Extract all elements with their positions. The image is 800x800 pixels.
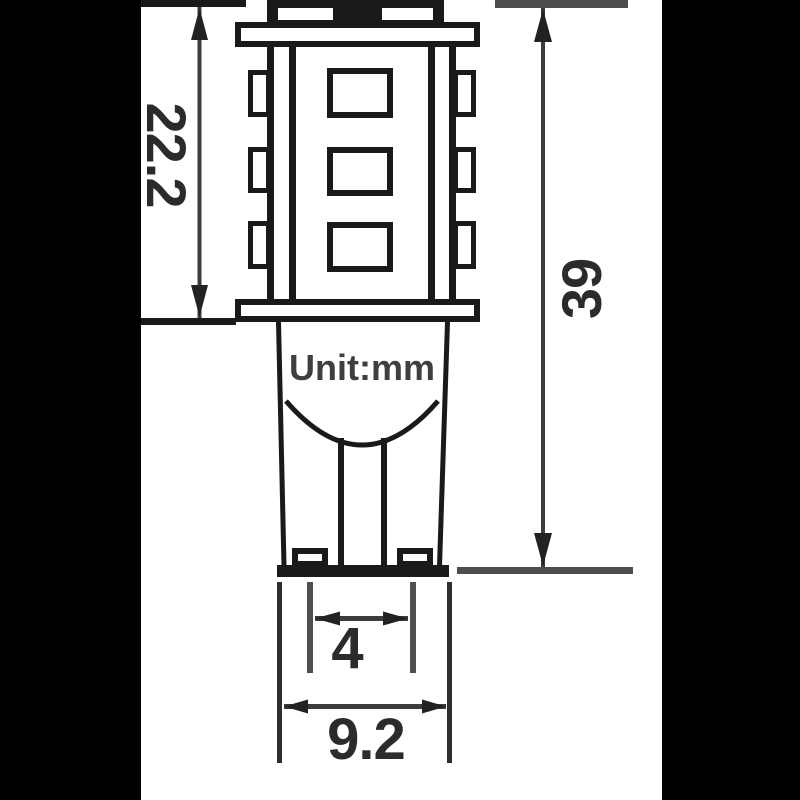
extension-line-left bbox=[277, 582, 282, 763]
base-notch-right bbox=[400, 551, 430, 564]
dimension-line bbox=[198, 7, 202, 318]
bulb-dimension-diagram: 22.2 39 4 9.2 Unit:mm bbox=[0, 0, 800, 800]
arrowhead-right bbox=[383, 612, 408, 626]
right-side-led-chips bbox=[456, 73, 474, 267]
arrowhead-right bbox=[422, 700, 446, 714]
base-notch-left bbox=[295, 551, 325, 564]
arrowhead-left bbox=[284, 700, 308, 714]
extension-line-top bbox=[141, 0, 246, 7]
base-width-value: 9.2 bbox=[327, 711, 405, 769]
top-plate bbox=[238, 25, 477, 44]
arrowhead-up bbox=[534, 9, 552, 42]
base-bottom-edge bbox=[277, 565, 449, 577]
tower-height-value: 22.2 bbox=[138, 103, 194, 208]
front-led-chips bbox=[330, 71, 390, 269]
arrowhead-down bbox=[191, 285, 208, 317]
extension-line-right bbox=[410, 582, 416, 673]
arrowhead-up bbox=[191, 8, 208, 40]
extension-line-right bbox=[447, 582, 452, 763]
dimension-line bbox=[541, 8, 545, 567]
extension-line-bottom bbox=[141, 318, 236, 325]
left-side-led-chips bbox=[251, 73, 269, 267]
unit-label: Unit:mm bbox=[289, 350, 435, 386]
flange-plate bbox=[238, 302, 477, 319]
top-led-row bbox=[267, 0, 444, 22]
extension-line-left bbox=[307, 582, 313, 673]
extension-line-bottom bbox=[457, 567, 633, 574]
arrowhead-down bbox=[534, 533, 552, 566]
bulb-line-art bbox=[0, 0, 800, 800]
total-length-value: 39 bbox=[554, 259, 610, 319]
contact-width-value: 4 bbox=[331, 620, 362, 678]
extension-line-top bbox=[495, 0, 628, 8]
glass-dome-arc bbox=[286, 401, 438, 445]
